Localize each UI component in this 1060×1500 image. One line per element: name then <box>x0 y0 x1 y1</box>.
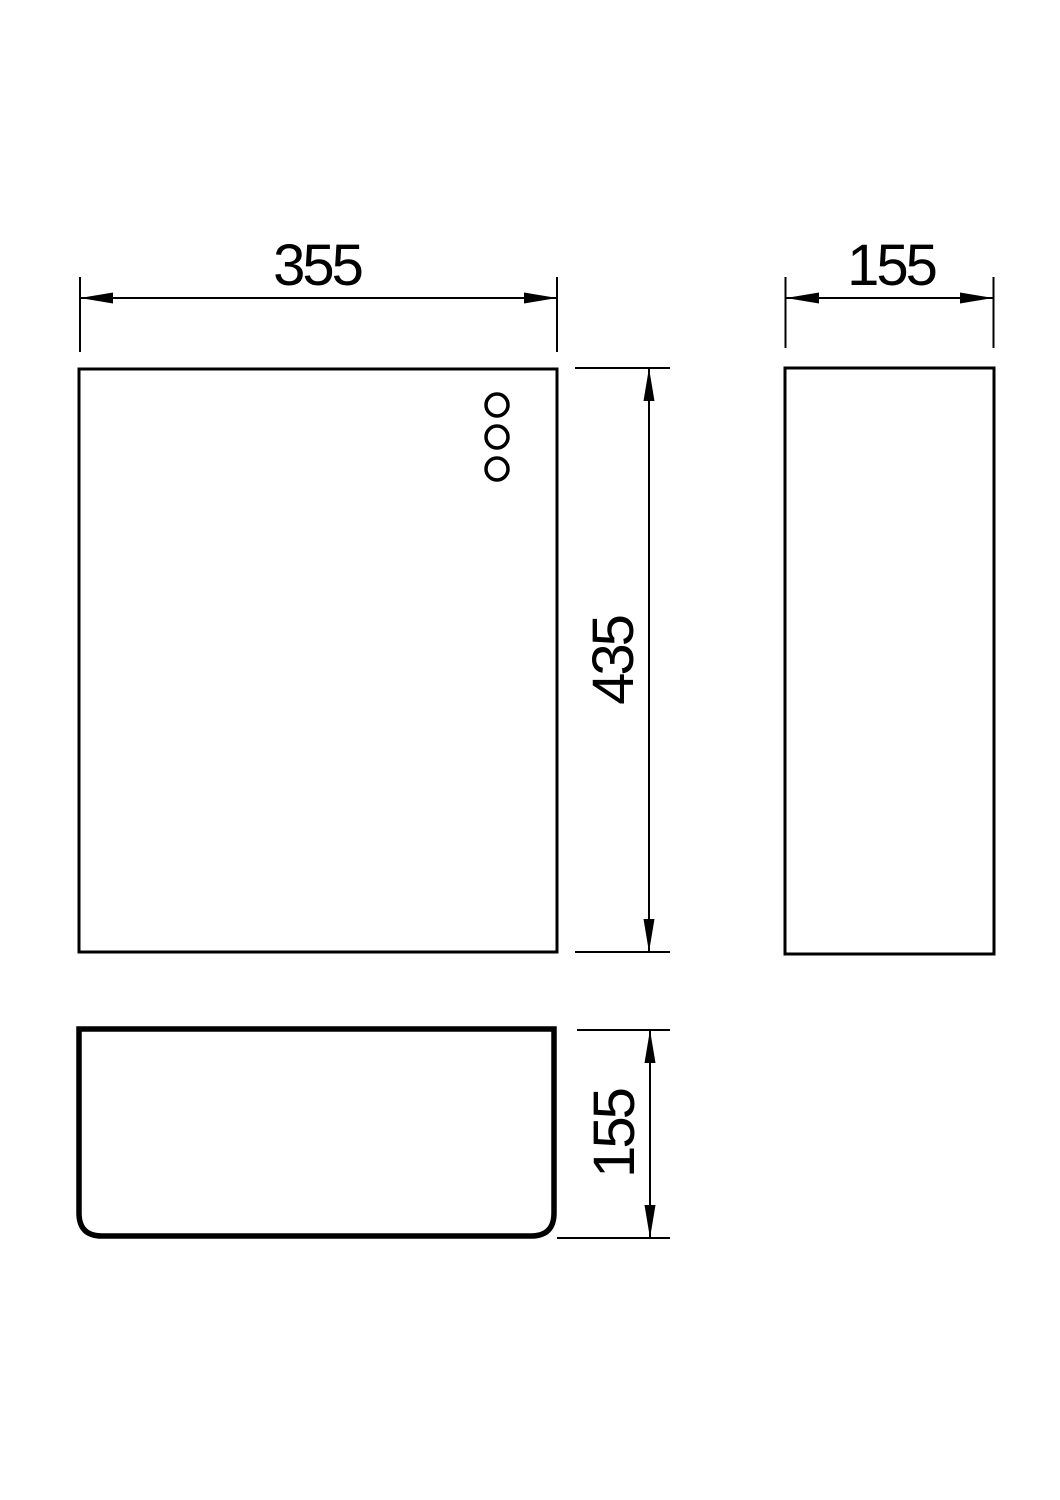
front-view <box>79 369 557 952</box>
drawing-sheet: { "drawing": { "background_color": "#fff… <box>0 0 1060 1500</box>
drawing-canvas: 355 155 435 155 <box>0 0 1060 1500</box>
arrowhead-right-icon <box>524 293 557 304</box>
dimension-front-height: 435 <box>575 368 670 952</box>
mounting-hole-top-icon <box>486 394 508 416</box>
dimension-plan-depth: 155 <box>557 1030 670 1238</box>
mounting-hole-middle-icon <box>486 426 508 448</box>
dimension-front-width: 355 <box>80 233 557 352</box>
technical-drawing: 355 155 435 155 <box>0 0 1060 1500</box>
dimension-front-width-value: 355 <box>273 233 362 298</box>
side-view-outline <box>785 368 994 954</box>
dimension-side-depth-value: 155 <box>847 233 936 298</box>
arrowhead-left-icon <box>80 293 113 304</box>
side-view <box>785 368 994 954</box>
arrowhead-bottom-icon <box>645 1205 656 1238</box>
arrowhead-left-icon <box>786 293 819 304</box>
front-view-outline <box>79 369 557 952</box>
arrowhead-top-icon <box>645 1030 656 1063</box>
plan-view-outline <box>79 1029 554 1236</box>
arrowhead-bottom-icon <box>644 919 655 952</box>
dimension-plan-depth-value: 155 <box>582 1089 647 1178</box>
arrowhead-right-icon <box>960 293 993 304</box>
dimension-side-depth: 155 <box>786 233 994 348</box>
mounting-hole-bottom-icon <box>486 458 508 480</box>
plan-view <box>79 1029 554 1236</box>
arrowhead-top-icon <box>644 368 655 401</box>
dimension-front-height-value: 435 <box>581 616 646 705</box>
